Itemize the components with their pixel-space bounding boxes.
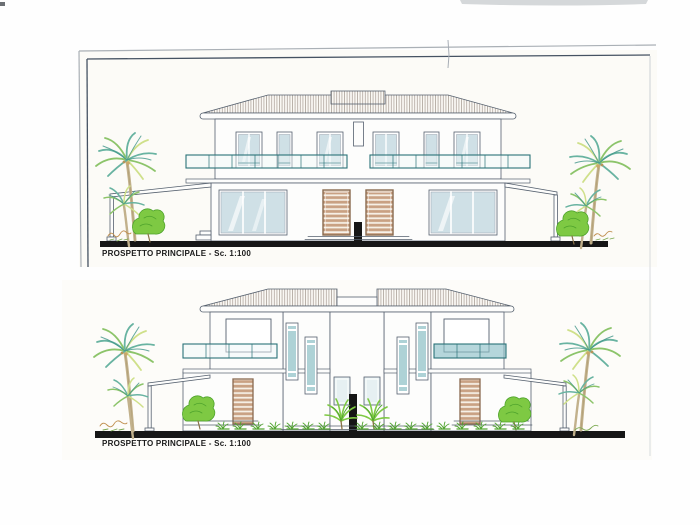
eave-band xyxy=(200,113,516,119)
bottom-sheet xyxy=(62,240,652,460)
entry-door-right xyxy=(366,190,393,235)
caption-top-elevation: PROSPETTO PRINCIPALE - Sc. 1:100 xyxy=(102,249,251,258)
top-sheet xyxy=(0,0,657,267)
eave-band xyxy=(200,306,514,312)
upper-floor xyxy=(215,119,501,179)
entry-door-left xyxy=(233,379,253,424)
clerestory xyxy=(337,297,377,306)
chimney xyxy=(354,122,364,146)
party-wall-post xyxy=(354,222,362,241)
ground-line xyxy=(95,431,625,438)
floor-slab xyxy=(186,179,530,183)
ground-line xyxy=(100,241,608,247)
party-wall-post xyxy=(349,394,357,431)
caption-bottom-elevation: PROSPETTO PRINCIPALE - Sc. 1:100 xyxy=(102,439,251,448)
entry-door-right xyxy=(460,379,480,424)
sliding-window-right xyxy=(429,190,497,235)
scan-speck xyxy=(0,2,5,6)
balcony-left xyxy=(183,344,277,358)
sliding-window-left xyxy=(219,190,287,235)
scan-smudge xyxy=(460,0,648,6)
balcony-right xyxy=(434,344,506,358)
entry-door-left xyxy=(323,190,350,235)
